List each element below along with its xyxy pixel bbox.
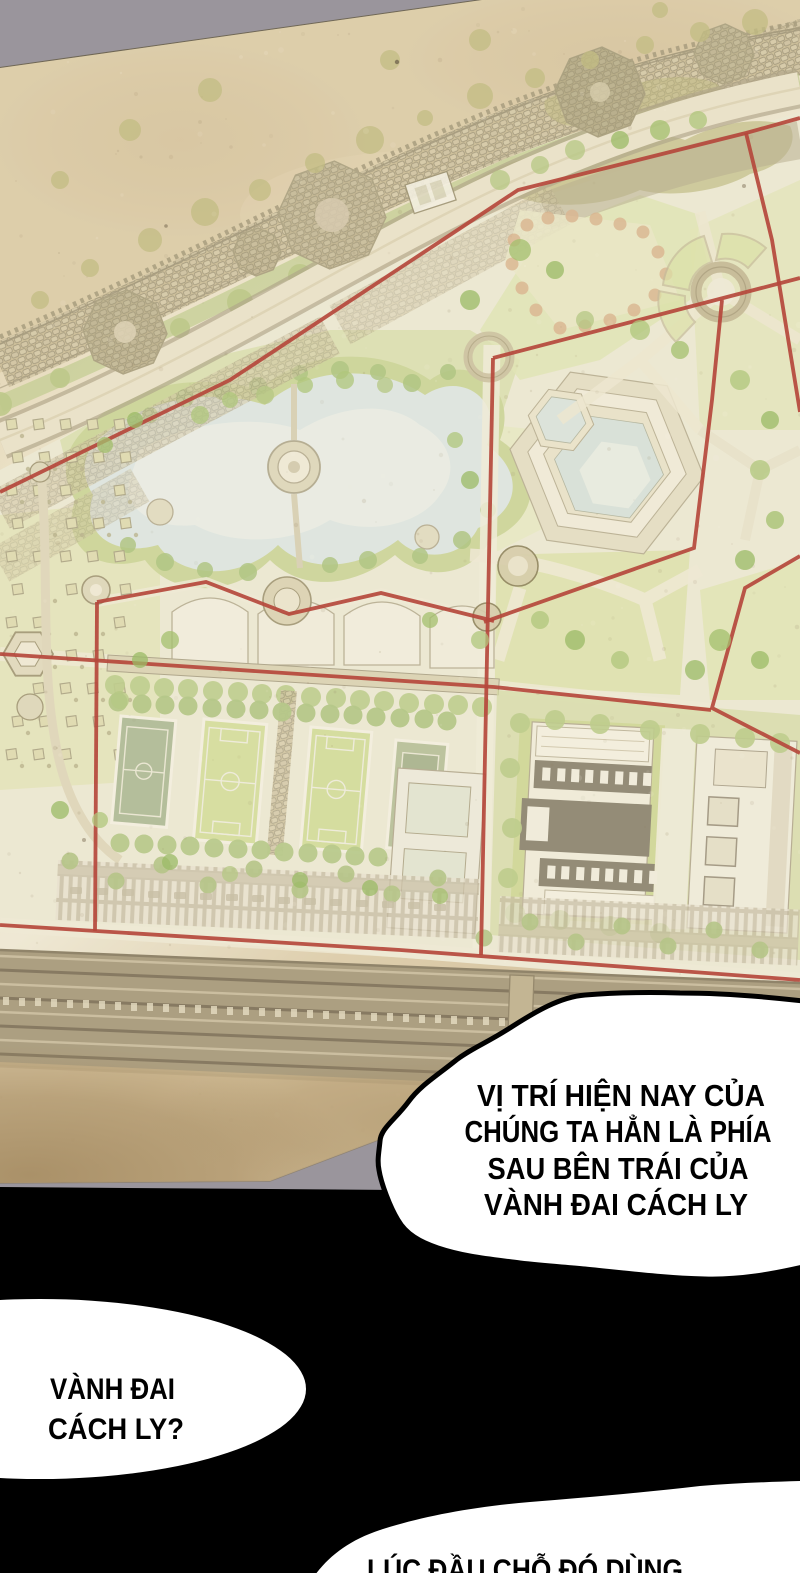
svg-text:VÀNH ĐAI CÁCH LY: VÀNH ĐAI CÁCH LY (484, 1187, 748, 1222)
svg-text:VỊ TRÍ HIỆN NAY CỦA: VỊ TRÍ HIỆN NAY CỦA (477, 1077, 765, 1113)
svg-text:LÚC ĐẦU CHỖ ĐÓ DÙNG: LÚC ĐẦU CHỖ ĐÓ DÙNG (367, 1553, 683, 1573)
svg-text:VÀNH ĐAI: VÀNH ĐAI (50, 1372, 175, 1406)
svg-text:CHÚNG TA HẲN LÀ PHÍA: CHÚNG TA HẲN LÀ PHÍA (465, 1113, 772, 1149)
svg-text:CÁCH LY?: CÁCH LY? (48, 1412, 184, 1446)
svg-text:SAU BÊN TRÁI CỦA: SAU BÊN TRÁI CỦA (488, 1150, 749, 1186)
